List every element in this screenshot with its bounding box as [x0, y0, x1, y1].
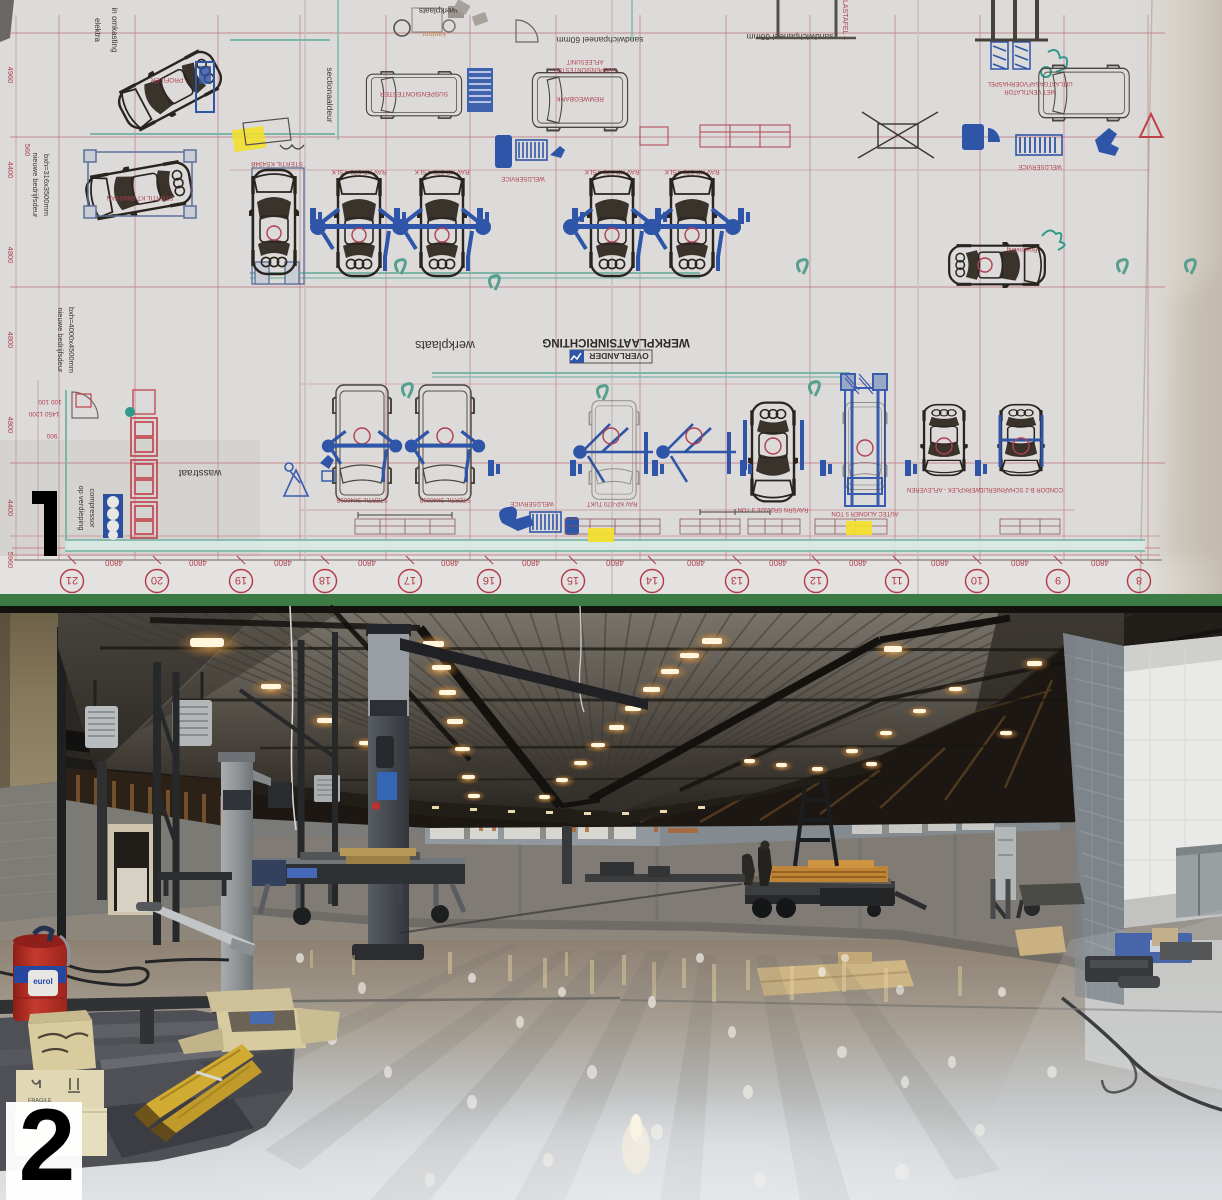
svg-text:STERTIL SK4000B: STERTIL SK4000B [419, 496, 470, 502]
svg-text:werkplaats: werkplaats [419, 6, 458, 15]
svg-text:elektra: elektra [93, 18, 102, 43]
svg-text:4800: 4800 [6, 417, 15, 434]
svg-text:op verdieping: op verdieping [77, 485, 86, 530]
svg-text:2: 2 [19, 1088, 76, 1200]
svg-text:WERKPLEK - AFLEVEREN: WERKPLEK - AFLEVEREN [907, 486, 981, 492]
svg-text:4800: 4800 [441, 558, 459, 567]
svg-text:4400: 4400 [6, 500, 15, 517]
svg-text:12: 12 [810, 574, 822, 586]
svg-text:4800: 4800 [769, 558, 787, 567]
svg-text:19: 19 [235, 574, 247, 586]
svg-text:4800: 4800 [6, 332, 15, 349]
svg-text:UITLAATGASAFVOERHASPEL: UITLAATGASAFVOERHASPEL [987, 80, 1073, 86]
svg-text:560: 560 [23, 144, 32, 157]
svg-text:20: 20 [151, 574, 163, 586]
svg-text:4960: 4960 [6, 67, 15, 84]
svg-text:9: 9 [1055, 574, 1061, 586]
svg-text:MET VENTILATOR: MET VENTILATOR [1004, 88, 1056, 94]
svg-text:compressor: compressor [88, 488, 97, 528]
svg-text:14: 14 [646, 574, 658, 586]
svg-text:4800: 4800 [105, 558, 123, 567]
svg-text:900: 900 [46, 432, 57, 439]
svg-text:nieuwe bedrijfsdeur: nieuwe bedrijfsdeur [31, 152, 40, 218]
svg-text:10: 10 [971, 574, 983, 586]
svg-text:STERTIL KT BIMSVAN: STERTIL KT BIMSVAN [106, 194, 173, 201]
svg-text:wasstraat: wasstraat [178, 467, 222, 478]
svg-text:REMWEGBANK: REMWEGBANK [556, 95, 604, 102]
svg-text:PROFILER: PROFILER [150, 76, 183, 83]
svg-text:bxh=4000x4500mm: bxh=4000x4500mm [67, 307, 76, 373]
svg-text:4800: 4800 [274, 558, 292, 567]
svg-text:AFLEESUNIT: AFLEESUNIT [566, 58, 603, 64]
svg-text:WELDSERVICE: WELDSERVICE [510, 500, 554, 506]
svg-text:11: 11 [891, 574, 902, 586]
svg-text:4800: 4800 [189, 558, 207, 567]
svg-text:eurol: eurol [33, 977, 53, 986]
svg-text:RAVSRN SR2032E 3 TON: RAVSRN SR2032E 3 TON [737, 506, 808, 512]
svg-text:4800: 4800 [522, 558, 540, 567]
svg-text:WERKPLAATSINRICHTING: WERKPLAATSINRICHTING [542, 336, 689, 348]
svg-text:4800: 4800 [1011, 558, 1029, 567]
svg-text:CONDOR B-2 SCHARNIERLID: CONDOR B-2 SCHARNIERLID [978, 486, 1063, 492]
svg-text:LASTAFEL 4: LASTAFEL 4 [841, 0, 848, 40]
svg-text:STERTIL SK4000B: STERTIL SK4000B [336, 496, 387, 502]
svg-text:WELDSERVICE: WELDSERVICE [1018, 163, 1062, 169]
svg-text:sandwichpaneel 60mm: sandwichpaneel 60mm [557, 35, 644, 45]
svg-text:SUSPENSIONTESTER: SUSPENSIONTESTER [380, 90, 449, 97]
svg-text:4800: 4800 [931, 558, 949, 567]
svg-text:WELDSERVICE: WELDSERVICE [501, 175, 545, 181]
svg-text:4800: 4800 [358, 558, 376, 567]
svg-text:5960: 5960 [6, 552, 15, 569]
svg-text:STERTIL KS434B: STERTIL KS434B [251, 160, 303, 167]
svg-text:SUSPENSIONTESTER: SUSPENSIONTESTER [553, 66, 617, 72]
svg-text:4800: 4800 [687, 558, 705, 567]
svg-text:4800: 4800 [6, 247, 15, 264]
svg-text:15: 15 [567, 574, 579, 586]
svg-text:4400: 4400 [6, 162, 15, 179]
svg-text:kantoor: kantoor [422, 30, 446, 37]
svg-text:13: 13 [731, 574, 743, 586]
svg-text:21: 21 [66, 574, 78, 586]
svg-text:100 100: 100 100 [38, 398, 62, 405]
svg-text:werkplaats: werkplaats [415, 338, 476, 352]
svg-text:16: 16 [483, 574, 495, 586]
svg-text:18: 18 [319, 574, 331, 586]
svg-text:4800: 4800 [1091, 558, 1109, 567]
svg-text:OVERLANDER: OVERLANDER [589, 351, 649, 361]
svg-text:17: 17 [404, 574, 416, 586]
svg-text:AUTEC ALIGNER 5 TON: AUTEC ALIGNER 5 TON [831, 510, 898, 516]
svg-text:sectionaaldeur: sectionaaldeur [325, 67, 335, 122]
svg-text:1450 1200: 1450 1200 [28, 410, 59, 417]
svg-text:in omkasting: in omkasting [110, 8, 119, 53]
svg-text:Roetmeting: Roetmeting [1007, 246, 1038, 252]
svg-text:8: 8 [1136, 574, 1142, 586]
svg-text:nieuwe bedrijfsdeur: nieuwe bedrijfsdeur [56, 307, 65, 373]
svg-text:4800: 4800 [849, 558, 867, 567]
svg-text:RAV KP-070 TUKT: RAV KP-070 TUKT [586, 500, 637, 506]
svg-text:bxh=316x3500mm: bxh=316x3500mm [42, 154, 51, 216]
svg-text:4800: 4800 [606, 558, 624, 567]
